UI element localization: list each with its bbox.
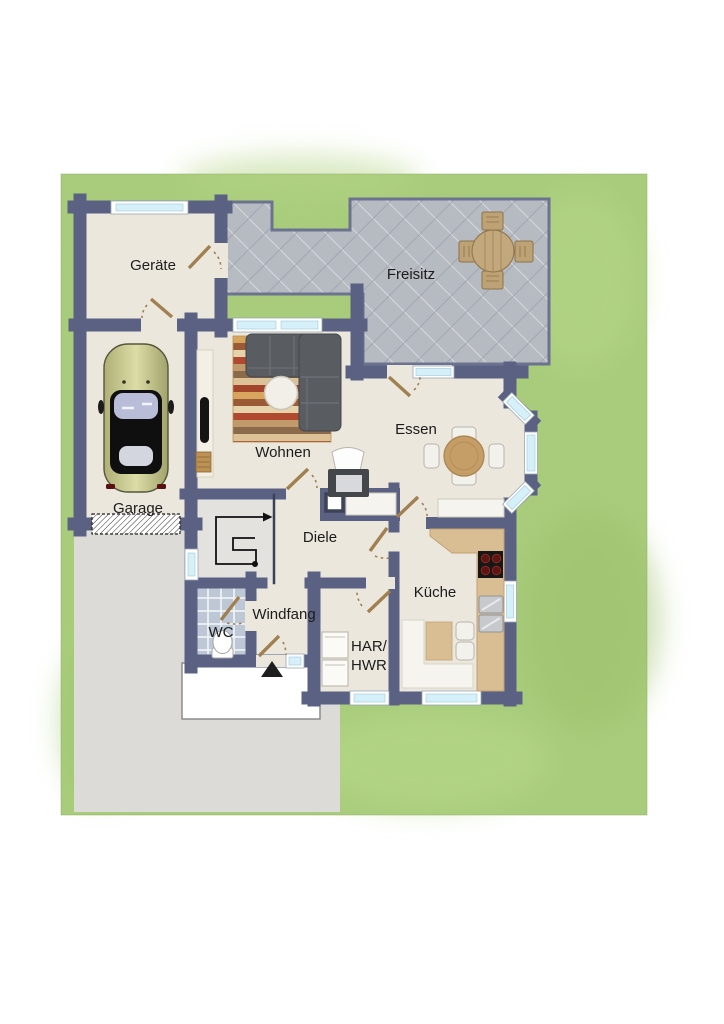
stair-floor — [196, 494, 273, 580]
coffee-table-icon — [265, 377, 298, 410]
stove-icon — [478, 551, 503, 578]
room-label-diele: Diele — [303, 529, 337, 546]
essen-kueche-wall — [426, 499, 504, 529]
window-bay-2 — [525, 432, 538, 474]
room-label-wohnen: Wohnen — [255, 444, 311, 461]
room-label-wc: WC — [209, 624, 234, 641]
entrance-porch — [182, 663, 320, 719]
buffet — [438, 499, 504, 517]
tv-sideboard-icon — [196, 350, 213, 477]
room-label-essen: Essen — [395, 421, 437, 438]
room-label-garage: Garage — [113, 500, 163, 517]
room-label-kueche: Küche — [414, 584, 457, 601]
desk-chair-icon — [328, 448, 369, 498]
dryer-icon — [322, 660, 348, 686]
window-kueche-south — [422, 691, 481, 705]
kitchen-table-group — [402, 620, 474, 688]
window-hwr-south — [350, 691, 389, 705]
floor-plan-canvas: Geräte Freisitz Garage Wohnen Essen Diel… — [0, 0, 724, 1024]
window-wohnen-north — [233, 318, 322, 332]
window-geraete-north — [111, 201, 188, 214]
room-label-hwr-2: HWR — [351, 657, 387, 674]
room-label-windfang: Windfang — [252, 606, 315, 623]
room-label-geraete: Geräte — [130, 257, 176, 274]
room-label-hwr-1: HAR/ — [351, 638, 388, 655]
car-icon — [98, 344, 174, 492]
floor-plan-page: Geräte Freisitz Garage Wohnen Essen Diel… — [0, 0, 724, 1024]
window-kueche-east — [504, 581, 517, 622]
window-patio-door-sidelight — [413, 366, 454, 378]
washer-icon — [322, 632, 348, 658]
window-stair-west — [185, 549, 198, 580]
room-label-freisitz: Freisitz — [387, 266, 435, 283]
garage-door — [92, 514, 180, 534]
window-windfang-south — [286, 654, 304, 668]
